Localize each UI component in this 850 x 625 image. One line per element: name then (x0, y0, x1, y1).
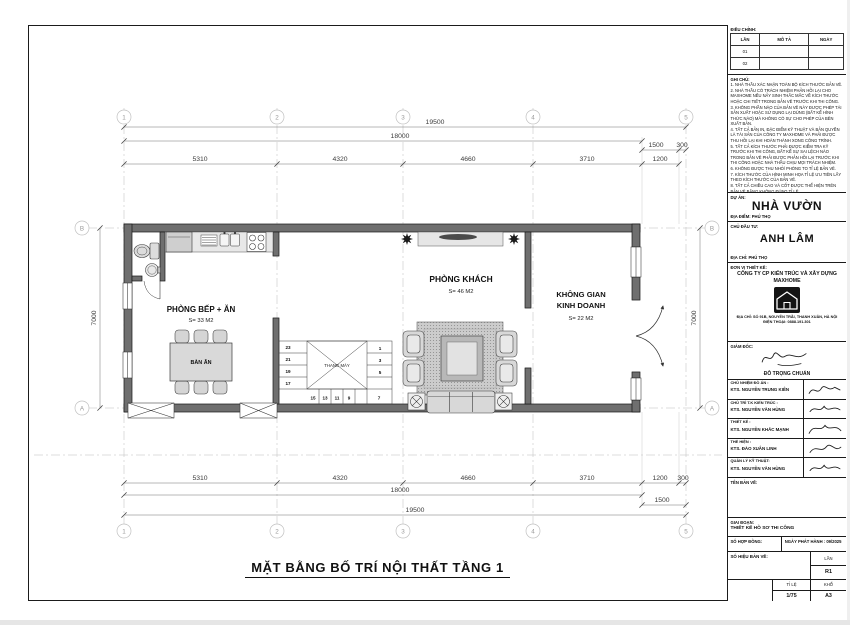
svg-text:3710: 3710 (579, 475, 594, 482)
drawing-title: MẶT BẰNG BỐ TRÍ NỘI THẤT TẦNG 1 (28, 559, 727, 577)
sheet-rev-label: LẦN (811, 552, 846, 566)
staff-row: QUẢN LÝ KỸ THUẬT: KTS. NGUYỄN VĂN HÙNG (728, 458, 846, 477)
wc-door-swing (144, 281, 160, 299)
signature (807, 401, 843, 416)
drawing-name-section: TÊN BẢN VẼ: (728, 478, 846, 518)
svg-text:11: 11 (335, 396, 340, 401)
director-label: GIÁM ĐỐC: (731, 344, 754, 349)
room-living-name: PHÒNG KHÁCH (429, 273, 492, 284)
designer-section: ĐƠN VỊ THIẾT KẾ: CÔNG TY CP KIẾN TRÚC VÀ… (728, 263, 846, 342)
room-business-name-1: KHÔNG GIAN (556, 290, 605, 299)
dim-overall-bottom: 19500 (406, 507, 425, 514)
svg-text:13: 13 (322, 396, 328, 401)
project-location: ĐỊA ĐIỂM: PHÚ THỌ (731, 214, 771, 219)
dim-height-right: 7000 (691, 310, 698, 325)
director-section: GIÁM ĐỐC: ĐỖ TRỌNG CHUẨN (728, 342, 846, 380)
floor-plan: 19500 18000 1500 300 5310 4320 4660 3710… (28, 25, 727, 601)
issue-date: NGÀY PHÁT HÀNH : 09/2025 (782, 537, 846, 551)
room-living-area: S= 46 M2 (449, 289, 474, 295)
contract-label: SỐ HỢP ĐỒNG: (728, 537, 782, 551)
svg-text:3: 3 (401, 114, 405, 121)
svg-text:3: 3 (379, 358, 382, 363)
dim-porch-top: 1500 (648, 142, 663, 149)
svg-text:4: 4 (531, 114, 535, 121)
dining-table-label: BÀN ĂN (191, 359, 212, 366)
fridge-icon (166, 232, 192, 252)
svg-text:4: 4 (531, 528, 535, 535)
svg-text:4660: 4660 (460, 156, 475, 163)
living-room (399, 231, 523, 413)
svg-text:3: 3 (401, 528, 405, 535)
room-business-name-2: KINH DOANH (557, 301, 606, 310)
sofa (427, 391, 495, 413)
room-labels: PHÒNG BẾP + ĂN S= 33 M2 PHÒNG KHÁCH S= 4… (167, 273, 606, 324)
signature (807, 421, 843, 436)
revision-section: ĐIỀU CHỈNH: LẦN MÔ TẢ NGÀY 01 02 (728, 25, 846, 75)
client-label: CHỦ ĐẦU TƯ: (731, 224, 759, 229)
svg-text:15: 15 (310, 396, 316, 401)
scale-label: TỈ LỆ (773, 580, 810, 591)
svg-text:19: 19 (285, 369, 291, 374)
contract-section: SỐ HỢP ĐỒNG: NGÀY PHÁT HÀNH : 09/2025 (728, 537, 846, 552)
project-section: DỰ ÁN: NHÀ VƯỜN ĐỊA ĐIỂM: PHÚ THỌ (728, 193, 846, 222)
svg-text:4320: 4320 (332, 475, 347, 482)
extension-lines (642, 137, 679, 506)
drawing-name-label: TÊN BẢN VẼ: (731, 480, 758, 485)
stair-numbers: 23 21 19 17 1 3 5 15 13 11 9 7 (285, 345, 381, 401)
title-block: ĐIỀU CHỈNH: LẦN MÔ TẢ NGÀY 01 02 GHI CHÚ… (727, 25, 846, 601)
wash-basin-icon (146, 264, 161, 277)
maxhome-logo (774, 287, 800, 313)
signature (807, 382, 843, 397)
project-label: DỰ ÁN: (731, 195, 746, 200)
dim-overall-top: 19500 (426, 119, 445, 126)
signature (807, 460, 843, 475)
svg-text:5: 5 (684, 114, 688, 121)
elevator-label: THANG MÁY (324, 363, 350, 368)
designer-company: CÔNG TY CP KIẾN TRÚC VÀ XÂY DỰNG (728, 271, 846, 278)
staff-row: THIẾT KẾ : KTS. NGUYỄN KHẮC MẠNH (728, 419, 846, 439)
svg-text:5: 5 (684, 528, 688, 535)
cooktop-icon (247, 233, 266, 252)
revision-title: ĐIỀU CHỈNH: (728, 25, 846, 33)
sheet-number-section: SỐ HIỆU BẢN VẼ: LẦN R1 (728, 552, 846, 580)
dim-edge-top: 300 (676, 142, 688, 149)
director-signature (758, 346, 816, 368)
svg-text:5310: 5310 (192, 475, 207, 482)
dim-main-top: 18000 (391, 133, 410, 140)
svg-text:23: 23 (285, 345, 291, 350)
svg-text:2: 2 (275, 114, 279, 121)
page-edge-bottom (0, 620, 850, 625)
room-kitchen-name: PHÒNG BẾP + ĂN (167, 304, 236, 314)
svg-text:2: 2 (275, 528, 279, 535)
svg-text:1200: 1200 (652, 475, 667, 482)
dimension-text-bottom: 5310 4320 4660 3710 1200 300 18000 1500 … (192, 475, 688, 514)
signature (807, 441, 843, 456)
paper-size-label: KHỔ (811, 580, 846, 591)
svg-text:7: 7 (378, 396, 381, 401)
tv-icon (439, 234, 477, 240)
svg-text:4320: 4320 (332, 156, 347, 163)
scale-section: TỈ LỆ 1/75 KHỔ A3 (728, 580, 846, 601)
director-name: ĐỖ TRỌNG CHUẨN (728, 371, 846, 377)
revision-table: LẦN MÔ TẢ NGÀY 01 02 (730, 33, 844, 70)
svg-text:5: 5 (379, 370, 382, 375)
room-business-area: S= 22 M2 (569, 316, 594, 322)
phase-label: GIAI ĐOẠN: (731, 520, 844, 525)
dining-set: BÀN ĂN (170, 330, 232, 394)
kitchen-counter (165, 232, 273, 252)
designer-brand: MAXHOME (728, 278, 846, 285)
designer-address: ĐỊA CHỈ: SỐ 91B, NGUYỄN TRÃI, THANH XUÂN… (728, 315, 846, 320)
entrance-door (636, 306, 663, 366)
grid-bubbles: 1 2 3 4 5 1 2 3 4 5 B A B A (75, 110, 719, 538)
staff-row: CHỦ NHIỆM ĐỒ ÁN : KTS. NGUYỄN TRUNG KIÊN (728, 380, 846, 400)
client-name: ANH LÂM (728, 233, 846, 247)
sheet-rev-value: R1 (811, 566, 846, 579)
staff-row: THỂ HIỆN : KTS. ĐÀO XUÂN LINH (728, 439, 846, 459)
phase-section: GIAI ĐOẠN: THIẾT KẾ HỒ SƠ THI CÔNG (728, 518, 846, 537)
wc (134, 243, 161, 299)
svg-text:B: B (80, 225, 84, 232)
toilet-icon (134, 243, 159, 259)
designer-label: ĐƠN VỊ THIẾT KẾ: (731, 265, 767, 270)
svg-text:9: 9 (348, 396, 351, 401)
dim-porch-bottom: 1500 (654, 497, 669, 504)
scale-value: 1/75 (773, 591, 810, 601)
coffee-table (441, 336, 483, 381)
client-section: CHỦ ĐẦU TƯ: ANH LÂM ĐỊA CHỈ: PHÚ THỌ (728, 222, 846, 263)
drawing-sheet: 19500 18000 1500 300 5310 4320 4660 3710… (0, 0, 850, 625)
room-kitchen-area: S= 33 M2 (189, 318, 214, 324)
svg-text:1: 1 (122, 114, 126, 121)
sheet-number-label: SỐ HIỆU BẢN VẼ: (728, 552, 810, 579)
svg-text:1: 1 (122, 528, 126, 535)
svg-text:21: 21 (285, 357, 291, 362)
staff-section: CHỦ NHIỆM ĐỒ ÁN : KTS. NGUYỄN TRUNG KIÊN… (728, 380, 846, 478)
svg-text:1200: 1200 (652, 156, 667, 163)
svg-text:1: 1 (379, 346, 382, 351)
grid-lines (34, 108, 722, 538)
svg-text:4660: 4660 (460, 475, 475, 482)
dim-height-left: 7000 (91, 310, 98, 325)
dim-main-bottom: 18000 (391, 487, 410, 494)
dish-rack-icon (201, 235, 217, 246)
client-address: ĐỊA CHỈ: PHÚ THỌ (731, 255, 768, 260)
dim-edge-bottom: 300 (677, 475, 689, 482)
svg-text:17: 17 (285, 381, 291, 386)
phase-value: THIẾT KẾ HỒ SƠ THI CÔNG (731, 526, 844, 532)
staff-row: CHỦ TRÌ T.K KIẾN TRÚC : KTS. NGUYỄN VĂN … (728, 400, 846, 420)
svg-text:3710: 3710 (579, 156, 594, 163)
project-name: NHÀ VƯỜN (728, 199, 846, 214)
svg-text:B: B (710, 225, 714, 232)
svg-text:5310: 5310 (192, 156, 207, 163)
paper-size-value: A3 (811, 591, 846, 601)
notes-section: GHI CHÚ: 1. NHÀ THẦU XÁC NHẬN TOÀN BỘ KÍ… (728, 75, 846, 193)
designer-phone: ĐIỆN THOẠI: 0888.191.301 (728, 320, 846, 325)
